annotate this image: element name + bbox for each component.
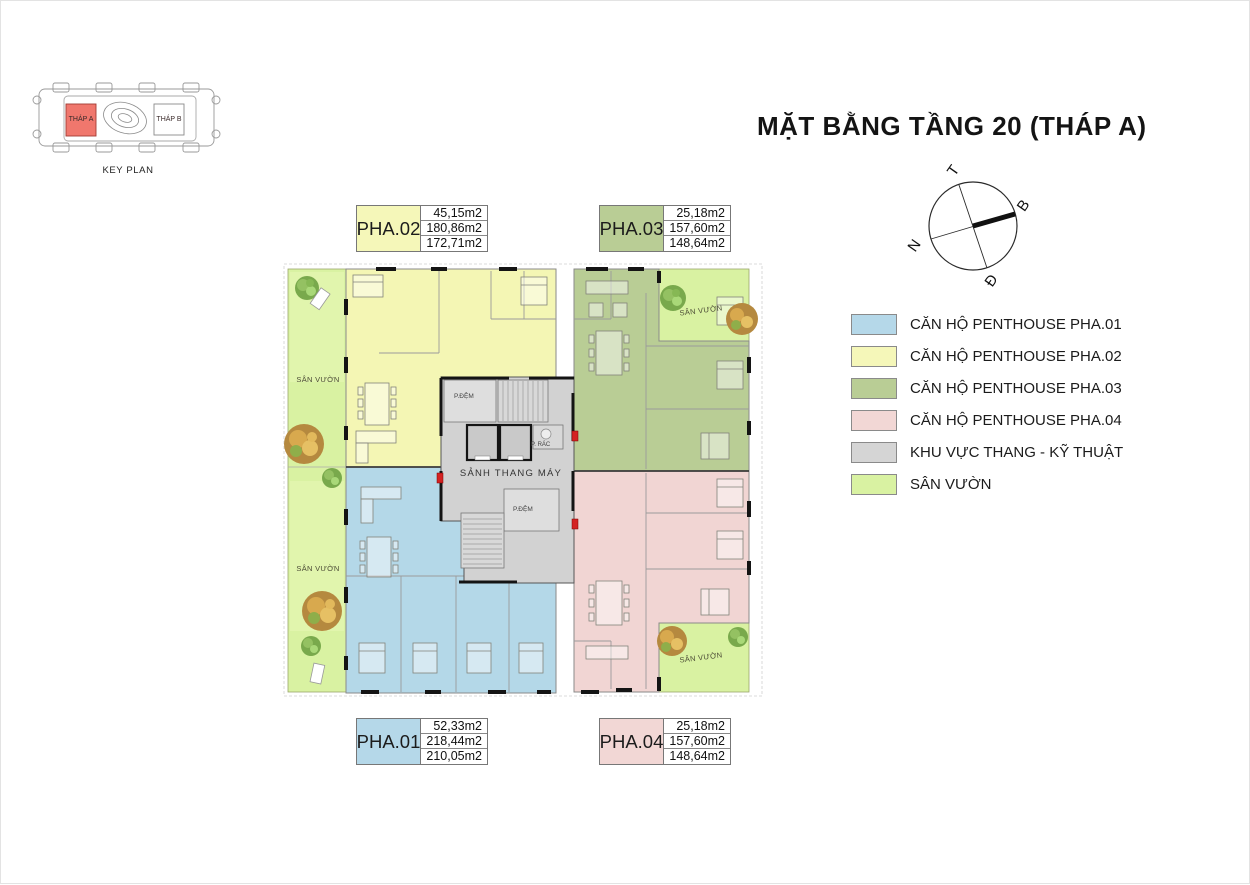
legend-item-core: KHU VỰC THANG - KỸ THUẬT — [851, 442, 1123, 463]
garden-label-left-upper: SÂN VƯỜN — [292, 375, 344, 384]
area-value: 218,44m2 — [421, 734, 487, 749]
area-table-pha04: PHA.04 25,18m2 157,60m2 148,64m2 — [599, 718, 731, 765]
area-value: 148,64m2 — [664, 749, 730, 764]
area-table-pha03: PHA.03 25,18m2 157,60m2 148,64m2 — [599, 205, 731, 252]
legend-item-pha01: CĂN HỘ PENTHOUSE PHA.01 — [851, 314, 1123, 335]
legend: CĂN HỘ PENTHOUSE PHA.01 CĂN HỘ PENTHOUSE… — [851, 314, 1123, 506]
area-value: 180,86m2 — [421, 221, 487, 236]
floor-plan — [284, 264, 762, 696]
tree-green — [322, 468, 342, 488]
legend-label: KHU VỰC THANG - KỸ THUẬT — [897, 444, 1123, 461]
legend-label: CĂN HỘ PENTHOUSE PHA.04 — [897, 412, 1122, 429]
legend-swatch-pha03 — [851, 378, 897, 399]
tree-orange — [284, 424, 324, 464]
area-value: 210,05m2 — [421, 749, 487, 764]
tree-orange — [302, 591, 342, 631]
elevator-lobby-label: SẢNH THANG MÁY — [449, 468, 573, 479]
key-plan-pool-swirl — [99, 97, 150, 139]
buffer-room-top-label: P.ĐỆM — [454, 393, 474, 400]
garden-label-left-lower: SÂN VƯỜN — [292, 564, 344, 573]
legend-item-pha03: CĂN HỘ PENTHOUSE PHA.03 — [851, 378, 1123, 399]
elevator-shaft-1 — [467, 425, 498, 460]
area-value: 148,64m2 — [664, 236, 730, 251]
tree-green — [301, 636, 321, 656]
legend-swatch-pha01 — [851, 314, 897, 335]
page-title: MẶT BẰNG TẦNG 20 (THÁP A) — [757, 111, 1147, 142]
area-value: 25,18m2 — [664, 719, 730, 734]
area-table-pha01: PHA.01 52,33m2 218,44m2 210,05m2 — [356, 718, 488, 765]
apartment-id-pha02: PHA.02 — [357, 206, 421, 251]
area-value: 45,15m2 — [421, 206, 487, 221]
apartment-id-pha04: PHA.04 — [600, 719, 664, 764]
legend-swatch-pha02 — [851, 346, 897, 367]
stairs-bottom — [461, 513, 504, 568]
area-value: 157,60m2 — [664, 221, 730, 236]
trash-room-label: P. RÁC — [531, 442, 550, 448]
floor-plan-page: { "title": "MẶT BẰNG TẦNG 20 (THÁP A)", … — [0, 0, 1250, 884]
tree-orange — [726, 303, 758, 335]
area-value: 25,18m2 — [664, 206, 730, 221]
area-value: 52,33m2 — [421, 719, 487, 734]
compass-needle — [973, 214, 1015, 226]
buffer-room-bottom-label: P.ĐỆM — [513, 506, 533, 513]
legend-label: CĂN HỘ PENTHOUSE PHA.03 — [897, 380, 1122, 397]
legend-label: SÂN VƯỜN — [897, 476, 992, 493]
apartment-id-pha01: PHA.01 — [357, 719, 421, 764]
buffer-room-top — [444, 380, 496, 422]
core-area — [441, 377, 574, 583]
area-value: 172,71m2 — [421, 236, 487, 251]
key-plan-tower-b-label: THÁP B — [154, 104, 184, 136]
legend-item-pha02: CĂN HỘ PENTHOUSE PHA.02 — [851, 346, 1123, 367]
legend-item-pha04: CĂN HỘ PENTHOUSE PHA.04 — [851, 410, 1123, 431]
tree-green — [660, 285, 686, 311]
area-value: 157,60m2 — [664, 734, 730, 749]
apartment-id-pha03: PHA.03 — [600, 206, 664, 251]
legend-swatch-garden — [851, 474, 897, 495]
legend-swatch-pha04 — [851, 410, 897, 431]
tree-orange — [657, 626, 687, 656]
legend-label: CĂN HỘ PENTHOUSE PHA.02 — [897, 348, 1122, 365]
tree-green — [728, 627, 748, 647]
area-table-pha02: PHA.02 45,15m2 180,86m2 172,71m2 — [356, 205, 488, 252]
legend-swatch-core — [851, 442, 897, 463]
key-plan-graphic — [33, 83, 220, 152]
elevator-shaft-2 — [500, 425, 531, 460]
key-plan-caption: KEY PLAN — [91, 165, 165, 176]
key-plan-tower-a-label: THÁP A — [66, 104, 96, 136]
legend-label: CĂN HỘ PENTHOUSE PHA.01 — [897, 316, 1122, 333]
compass-graphic — [929, 182, 1017, 270]
legend-item-garden: SÂN VƯỜN — [851, 474, 1123, 495]
